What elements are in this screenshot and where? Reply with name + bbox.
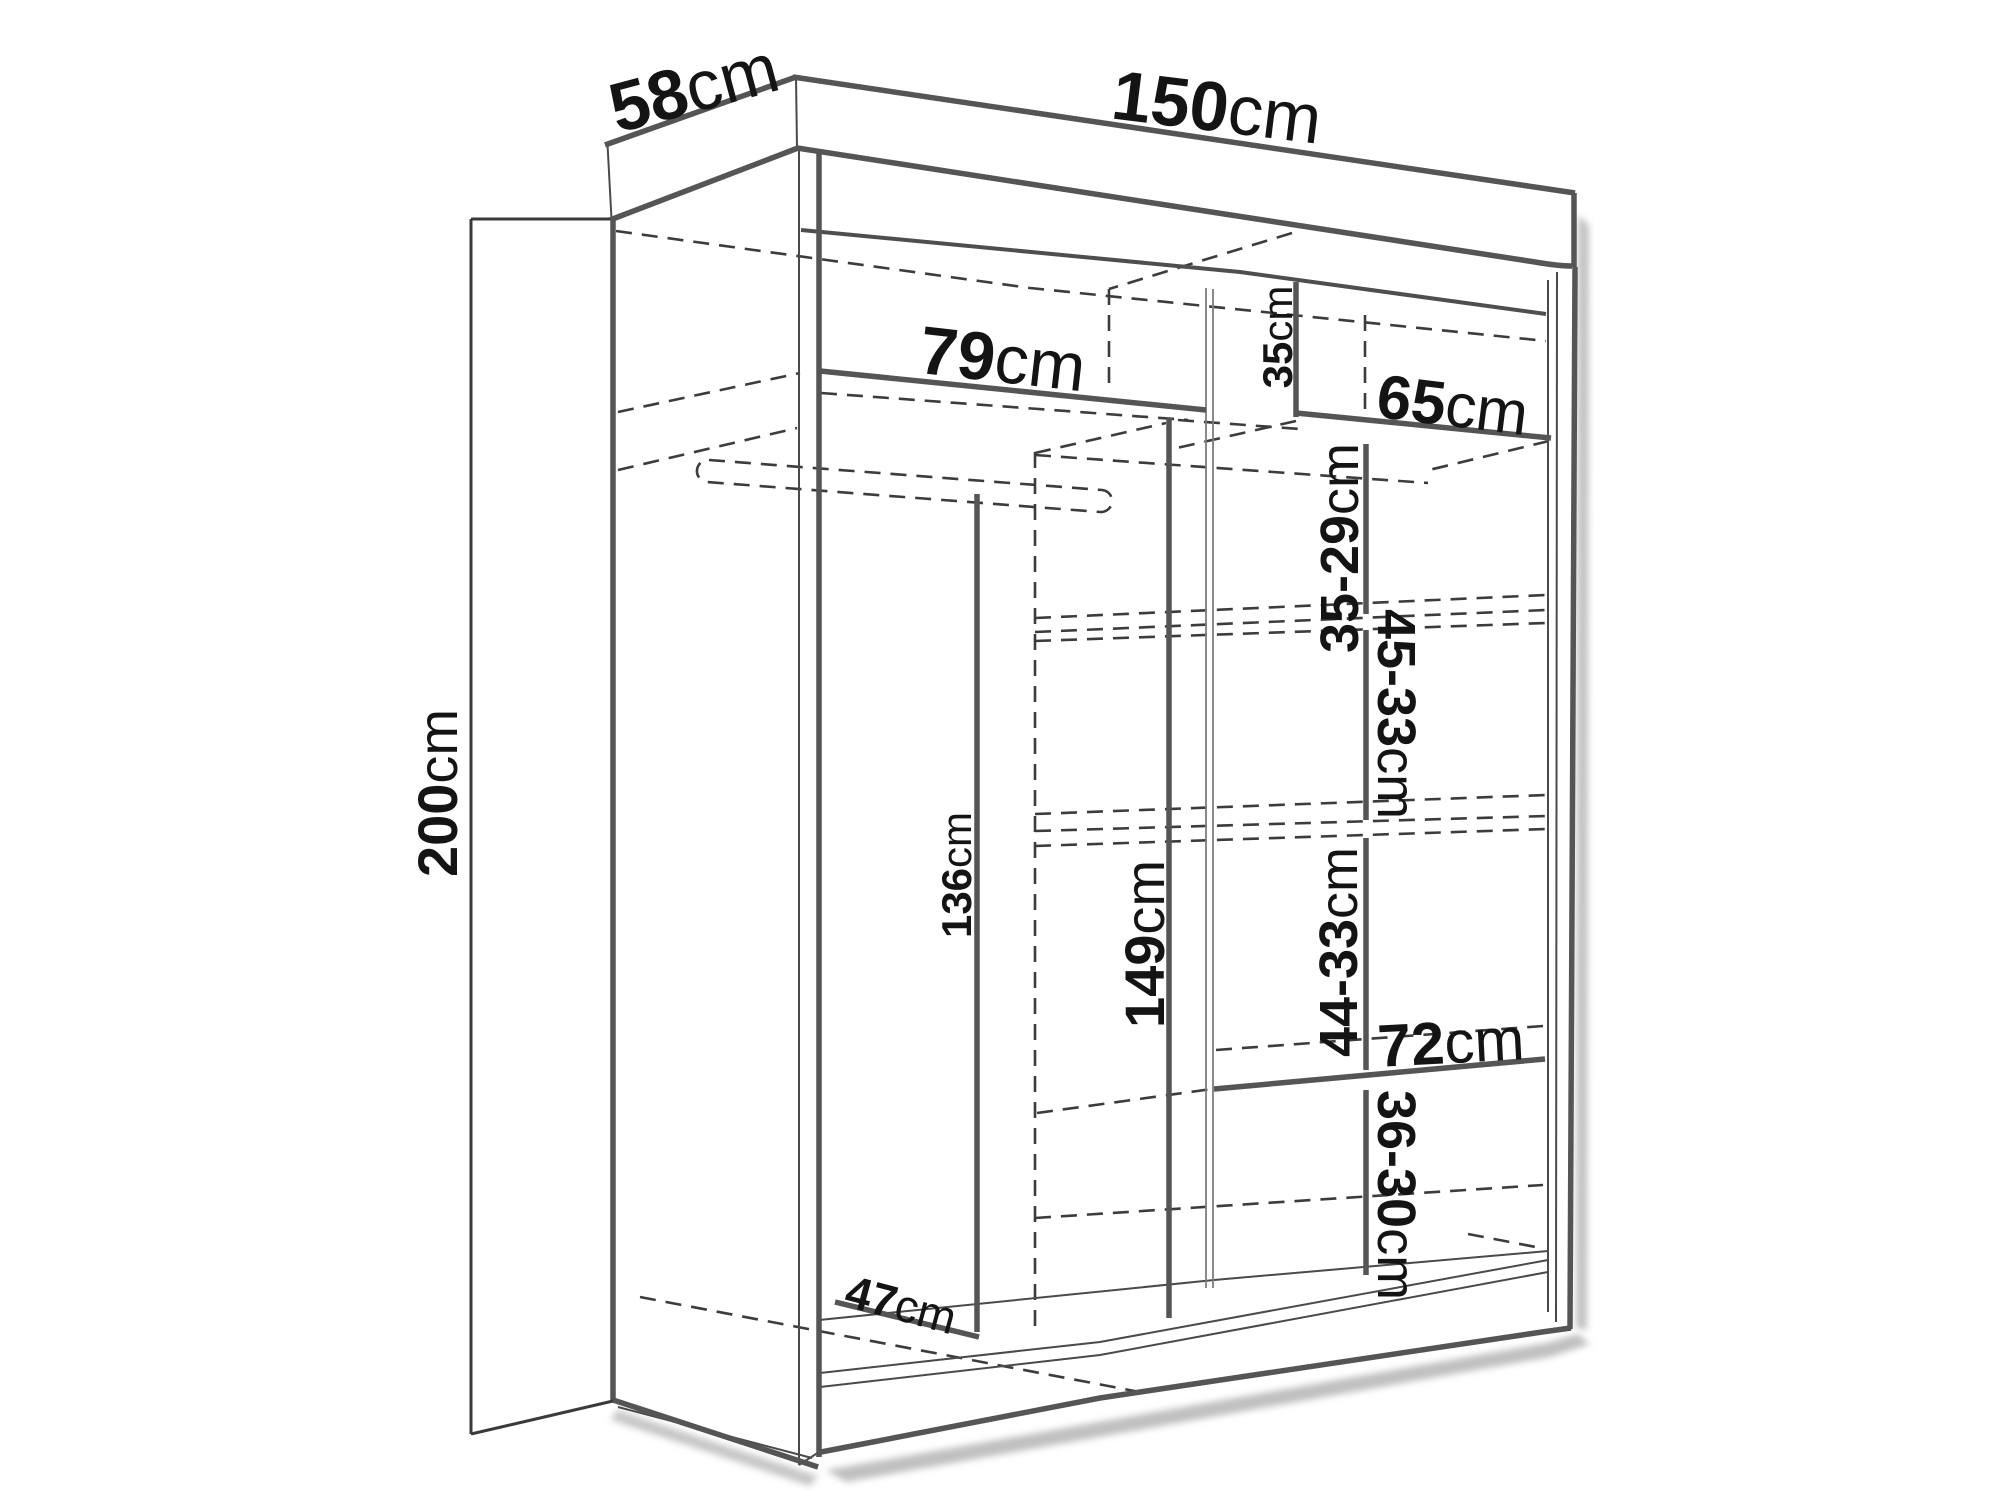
svg-text:45-33cm: 45-33cm [1366, 609, 1426, 819]
svg-text:136cm: 136cm [933, 812, 980, 938]
svg-text:200cm: 200cm [406, 709, 469, 877]
svg-text:72cm: 72cm [1376, 1005, 1526, 1080]
svg-text:36-30cm: 36-30cm [1366, 1090, 1426, 1300]
svg-text:35-29cm: 35-29cm [1310, 443, 1370, 653]
svg-text:44-33cm: 44-33cm [1309, 847, 1369, 1057]
svg-text:149cm: 149cm [1113, 860, 1176, 1028]
svg-text:35cm: 35cm [1254, 286, 1301, 389]
